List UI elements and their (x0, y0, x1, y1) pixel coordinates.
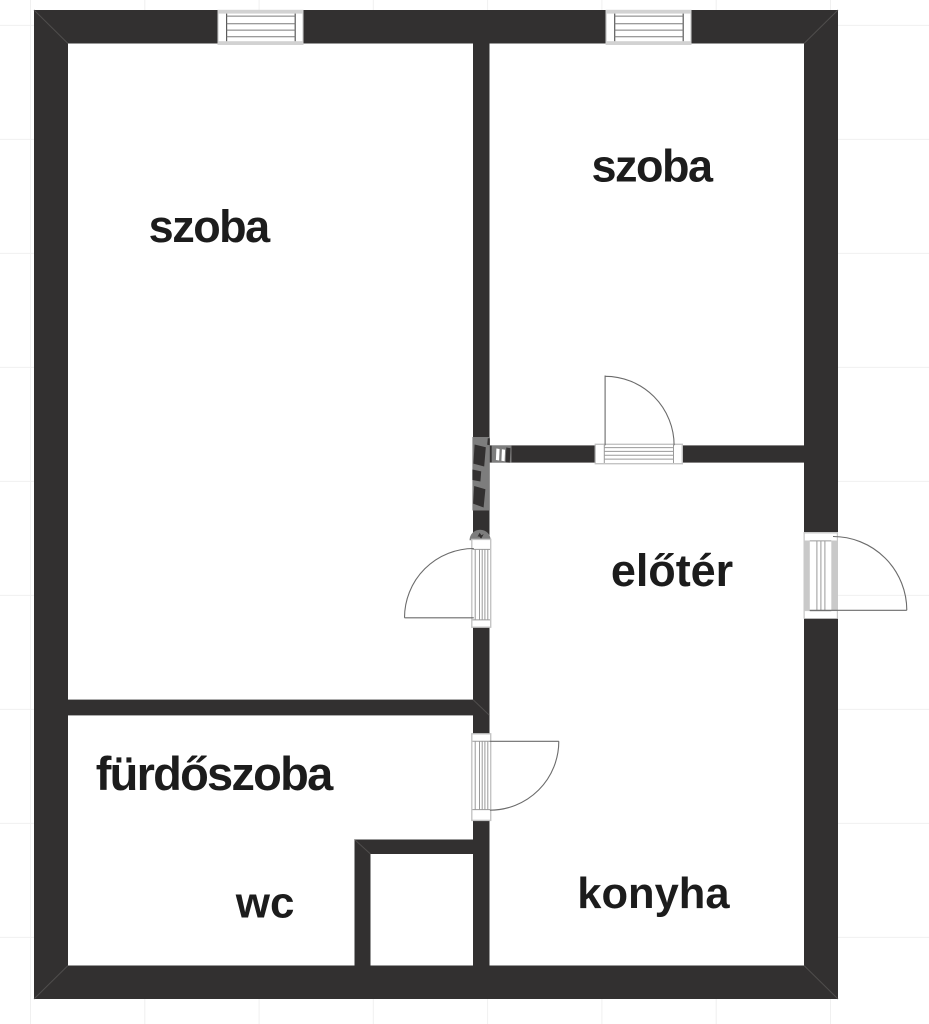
svg-text:wc: wc (235, 878, 295, 927)
svg-text:fürdőszoba: fürdőszoba (96, 747, 334, 800)
svg-text:konyha: konyha (577, 870, 730, 918)
svg-text:szoba: szoba (591, 140, 714, 191)
svg-text:szoba: szoba (149, 201, 272, 252)
svg-text:előtér: előtér (611, 545, 733, 596)
